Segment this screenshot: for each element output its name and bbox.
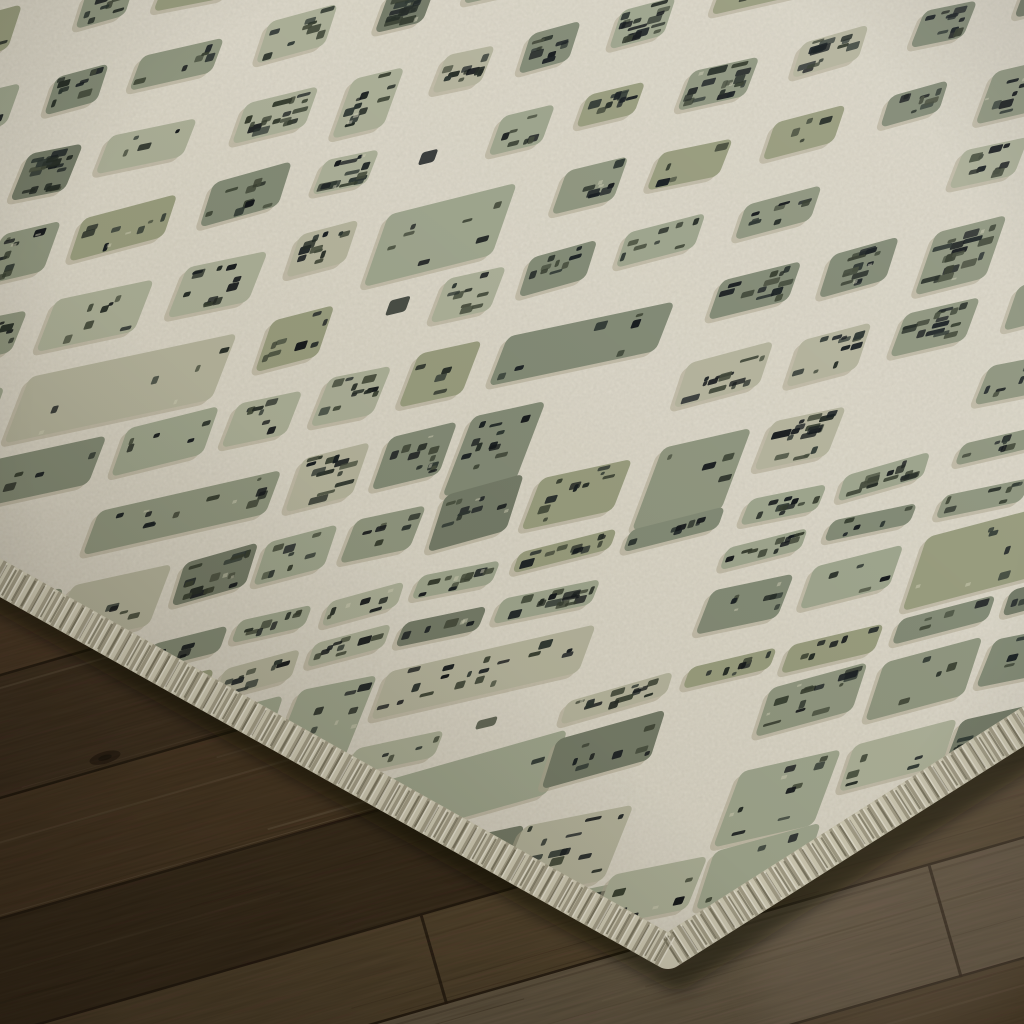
rug-product-photo [0, 0, 1024, 1024]
lighting-overlay [0, 0, 1024, 1024]
